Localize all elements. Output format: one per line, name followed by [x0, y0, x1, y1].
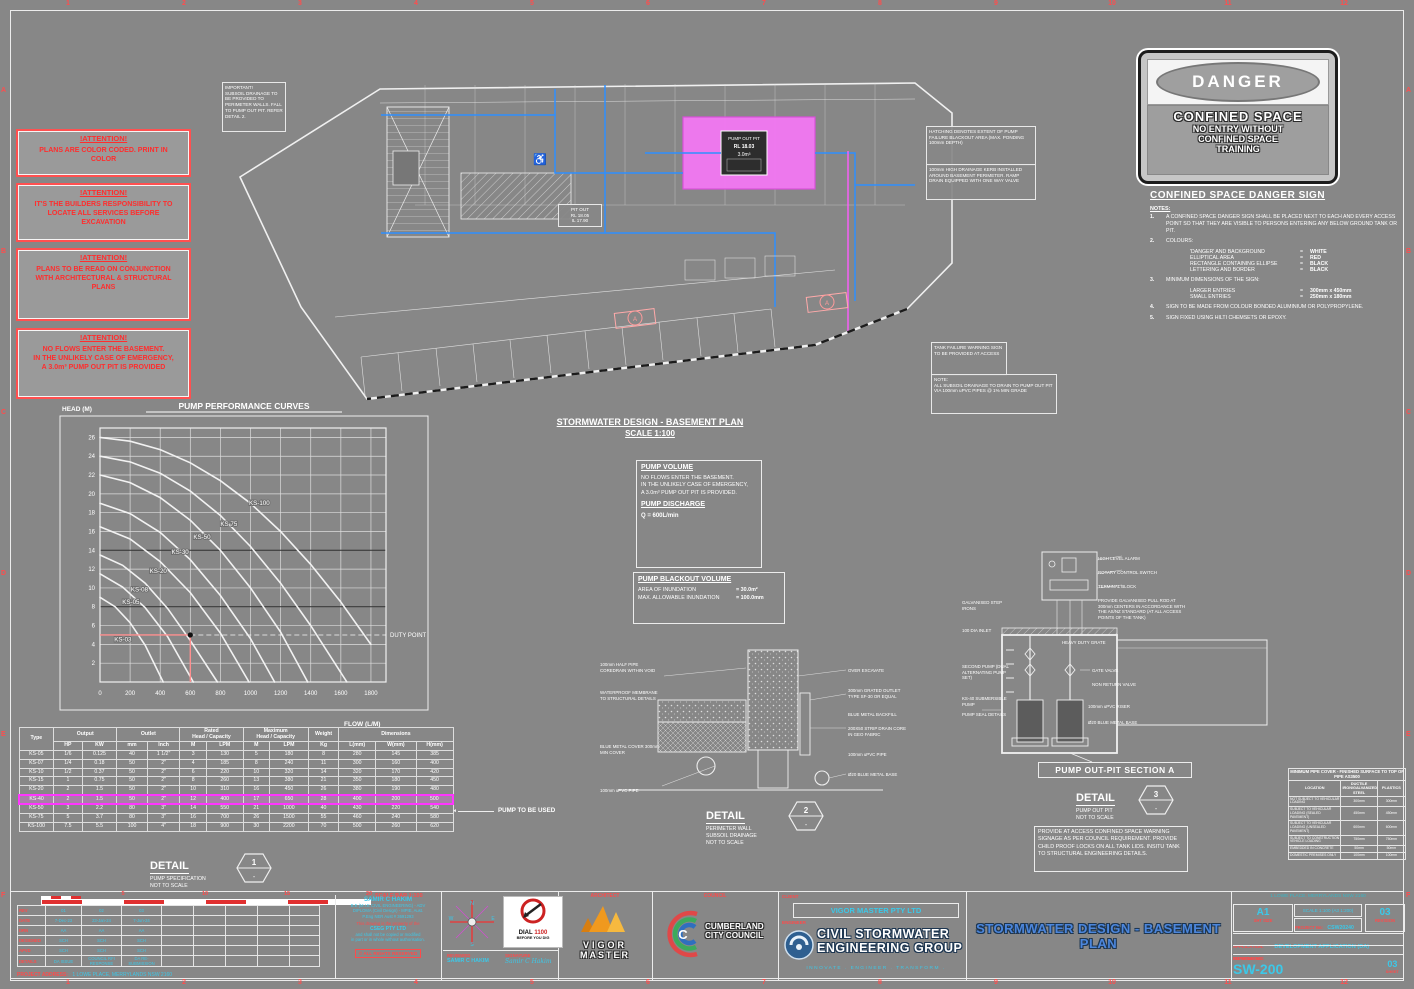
section-marker-a-right: A: [806, 293, 848, 313]
note-pairs: LARGER ENTRIES=300mm x 450mmSMALL ENTRIE…: [1190, 288, 1404, 300]
x-tick: 1000: [244, 691, 258, 697]
project-address-value: 1 LOWE PLACE, MERRYLANDS NSW 2160: [72, 972, 172, 978]
spec-row: KS-5032.2803"1455021100040430220540: [19, 804, 453, 813]
spec-cell: 4: [180, 759, 206, 768]
grid-row-label: D: [1406, 570, 1411, 577]
spec-cell: 350: [339, 777, 376, 786]
danger-word: DANGER: [1192, 72, 1284, 92]
spec-cell: 540: [416, 804, 453, 813]
pipe-cover-row: SUBJECT TO CONSTRUCTION VEHICLE LOADING7…: [1289, 835, 1406, 845]
note-number: 1.: [1150, 214, 1164, 234]
drawing-title-cell: STORMWATER DESIGN - BASEMENT PLAN: [966, 892, 1231, 980]
grid-col-label: 1: [60, 0, 76, 7]
svg-text:2: 2: [804, 806, 809, 815]
plan-note-3: 100mm HIGH DRAINAGE KERB INSTALLED AROUN…: [926, 164, 1036, 200]
rev-cell: [226, 946, 258, 956]
spec-cell: 50: [117, 777, 148, 786]
y-tick: 24: [88, 454, 95, 460]
pipe-cover-row: SUBJECT TO VEHICULAR LOADING (UNSEALED P…: [1289, 821, 1406, 835]
pipe-cover-row: NOT SUBJECT TO VEHICULAR LOADING300mm300…: [1289, 796, 1406, 806]
spec-cell: 320: [270, 768, 309, 777]
rev-row-label: APVD: [18, 946, 46, 956]
rev-cell: [226, 926, 258, 936]
spec-group-header: Weight: [308, 728, 339, 742]
detail-1-sub: PUMP SPECIFICATION NOT TO SCALE: [150, 876, 206, 890]
grid-col-label: 8: [872, 0, 888, 7]
signature-cell: SIGNATURE Samir C Hakim: [505, 953, 552, 965]
pair-value: 250mm x 180mm: [1310, 294, 1404, 300]
pipe-cover-header: LOCATION: [1289, 781, 1341, 797]
danger-line3: CONFINED SPACE: [1148, 134, 1328, 144]
detail-label: 100 DIA INLET: [962, 628, 1006, 634]
x-tick: 0: [98, 691, 102, 697]
spec-cell: 240: [270, 759, 309, 768]
spec-cell: 580: [416, 814, 453, 823]
spec-cell: 430: [339, 804, 376, 813]
spec-sub-header: LPM: [270, 742, 309, 751]
project-no-label: PROJECT No:: [1295, 925, 1323, 930]
spec-cell: 3: [180, 751, 206, 760]
pump-curves-svg: 0200400600800100012001400160018002468101…: [54, 398, 436, 734]
note-number: 2.: [1150, 238, 1164, 245]
rev-row-label: DESIGNED: [18, 936, 46, 946]
pipe-cover-cell: SUBJECT TO CONSTRUCTION VEHICLE LOADING: [1289, 835, 1341, 845]
pipe-cover-header: DUCTILE IRON/GALVANIZED STEEL: [1341, 781, 1377, 797]
divider: [1231, 892, 1232, 980]
section-marker-a-left: A: [614, 309, 656, 329]
rev-cell: [290, 956, 320, 967]
pipe-cover-header: PLASTICS: [1377, 781, 1405, 797]
note-text: SIGN TO BE MADE FROM COLOUR BONDED ALUMI…: [1166, 304, 1404, 311]
project-no-cell: PROJECT No: CSW20240: [1294, 918, 1362, 932]
spec-cell: 190: [376, 786, 417, 795]
detail-3-title: DETAIL: [1076, 792, 1115, 806]
grid-col-label: 5: [524, 979, 540, 986]
scalebar-mini: [41, 896, 51, 899]
scalebar-mini: [71, 896, 81, 899]
architect-logo: VIGOR MASTER: [558, 902, 652, 961]
pump-curve: [100, 503, 275, 682]
y-tick: 2: [92, 661, 96, 667]
spec-cell: 5: [243, 751, 269, 760]
pit-rl: RL 18.03: [734, 144, 755, 150]
spec-cell: 21: [308, 777, 339, 786]
basement-plan-drawing: ♿ PUMP OUT PIT RL 18.03 3.0m³: [215, 55, 1035, 405]
title-block: 5101520SCALE BAR 1:100 REV010203DATE7-De…: [10, 891, 1404, 981]
cseg-logo-icon: [783, 929, 815, 961]
project-address-label: PROJECT ADDRESS:: [17, 972, 68, 978]
pipe-cover-cell: 100mm: [1341, 852, 1377, 859]
rev-cell: [194, 936, 226, 946]
revision-cell: 03 REVISION: [1365, 904, 1405, 932]
pipe-cover-cell: 750mm: [1341, 835, 1377, 845]
accessible-parking-icon: ♿: [533, 153, 547, 166]
tb-project-address: 1 LOWE PLACE, MERRYLANDS NSW 2160: [1233, 894, 1403, 899]
spec-cell: 300: [339, 759, 376, 768]
danger-line1: CONFINED SPACE: [1148, 109, 1328, 124]
attention-title: !ATTENTION!: [18, 253, 189, 262]
svg-text:-: -: [253, 874, 256, 881]
spec-cell: 0.125: [82, 751, 117, 760]
spec-cell: 220: [376, 804, 417, 813]
svg-text:A: A: [825, 301, 829, 307]
rev-cell: [226, 916, 258, 926]
signature-script: Samir C Hakim: [505, 958, 552, 965]
pit-volume: 3.0m³: [738, 152, 751, 158]
rev-cell: SCH: [82, 936, 122, 946]
x-tick: 1200: [274, 691, 288, 697]
pair-equals: =: [1300, 267, 1310, 273]
note-pairs: 'DANGER' AND BACKGROUND=WHITEELLIPTICAL …: [1190, 249, 1404, 273]
attention-title: !ATTENTION!: [18, 333, 189, 342]
spec-cell: KS-20: [19, 786, 54, 795]
drawing-no-value: SW-200: [1233, 961, 1403, 977]
curve-label: KS-20: [150, 568, 168, 575]
rev-cell: [194, 906, 226, 916]
note-number: 5.: [1150, 315, 1164, 322]
spec-cell: 1.5: [82, 786, 117, 795]
pipe-cover-cell: NOT SUBJECT TO VEHICULAR LOADING: [1289, 796, 1341, 806]
section-a-note: PROVIDE AT ACCESS CONFINED SPACE WARNING…: [1034, 826, 1188, 872]
pump-performance-chart: 0200400600800100012001400160018002468101…: [54, 398, 436, 734]
spec-cell: 170: [376, 768, 417, 777]
rev-cell: [194, 956, 226, 967]
spec-cell: 400: [416, 759, 453, 768]
grid-row-label: C: [1, 409, 6, 416]
spec-cell: 30: [243, 822, 269, 831]
divider: [778, 892, 779, 980]
spec-group-header: Rated Head / Capacity: [180, 728, 243, 742]
credentials-cell: SAMIR C HAKIM B.E (M.I.E CIVIL ENGINEERI…: [335, 895, 440, 978]
spec-cell: 160: [376, 759, 417, 768]
grid-col-label: 9: [988, 0, 1004, 7]
spec-row: KS-1510.75502"82601338021350180450: [19, 777, 453, 786]
architect-label: ARCHITECT: [558, 893, 652, 899]
attention-body: NO FLOWS ENTER THE BASEMENT. IN THE UNLI…: [18, 345, 189, 372]
spec-row: KS-071/40.18502"4185824011300160400: [19, 759, 453, 768]
note-text: SIGN FIXED USING HILTI CHEMSETS OR EPOXY…: [1166, 315, 1404, 322]
y-tick: 26: [88, 435, 95, 441]
spec-cell: 100: [117, 822, 148, 831]
callout-leader-line: [458, 811, 494, 812]
spec-cell: 180: [270, 751, 309, 760]
spec-cell: 2": [147, 777, 180, 786]
spec-cell: 5: [54, 814, 83, 823]
detail-1-title: DETAIL: [150, 860, 189, 874]
pipe-cover-cell: SUBJECT TO VEHICULAR LOADING (UNSEALED P…: [1289, 821, 1341, 835]
plan-note-5: NOTE: ALL SUBSOIL DRAINAGE TO DRAIN TO P…: [931, 374, 1057, 414]
spec-cell: 3": [147, 804, 180, 813]
council-logo-text: CUMBERLAND CITY COUNCIL: [705, 922, 777, 941]
grid-col-label: 3: [292, 0, 308, 7]
spec-cell: 480: [416, 786, 453, 795]
compass-s: S: [470, 942, 474, 947]
spec-sub-header: H(mm): [416, 742, 453, 751]
pipe-cover-cell: 100mm: [1377, 852, 1405, 859]
revision-table-el: REV010203DATE7-Dec-2323-Jan-247-Jun-24DR…: [17, 905, 320, 967]
spec-row: KS-2021.5502"103101645026380190480: [19, 786, 453, 795]
spec-cell: 26: [243, 814, 269, 823]
rev-cell: [258, 926, 290, 936]
pipe-cover-row: SUBJECT TO VEHICULAR LOADING (SEALED PAV…: [1289, 807, 1406, 821]
spec-cell: 50: [117, 795, 148, 805]
spec-cell: 14: [180, 804, 206, 813]
spec-cell: 900: [206, 822, 243, 831]
spec-cell: 280: [339, 751, 376, 760]
project-no-value: CSW20240: [1327, 925, 1354, 931]
spec-group-header: Maximum Head / Capacity: [243, 728, 308, 742]
spec-cell: 8: [180, 777, 206, 786]
note-number: 4.: [1150, 304, 1164, 311]
spec-cell: 550: [206, 804, 243, 813]
rev-cell: AA: [82, 926, 122, 936]
spec-row: KS-101/20.37502"62201032014320170420: [19, 768, 453, 777]
spec-cell: 1/6: [54, 751, 83, 760]
rev-cell: [162, 946, 194, 956]
architect-logo-line2: MASTER: [558, 951, 652, 961]
attention-body: PLANS TO BE READ ON CONJUNCTION WITH ARC…: [18, 265, 189, 292]
grid-col-label: 5: [524, 0, 540, 7]
spec-sub-header: HP: [54, 742, 83, 751]
spec-cell: KS-15: [19, 777, 54, 786]
grid-col-label: 6: [640, 0, 656, 7]
spec-cell: 10: [243, 768, 269, 777]
divider: [652, 892, 653, 980]
spec-cell: 400: [206, 795, 243, 805]
spec-cell: KS-05: [19, 751, 54, 760]
section-a-heading: PUMP OUT-PIT SECTION A: [1038, 762, 1192, 778]
compass-n: N: [470, 901, 474, 907]
engineer-tagline: INNOVATE . ENGINEER . TRANSFORM .: [793, 966, 959, 971]
spec-cell: 1 1/2": [147, 751, 180, 760]
callout-arrow: ◄: [452, 808, 457, 814]
spec-cell: 80: [117, 804, 148, 813]
spec-cell: 2200: [270, 822, 309, 831]
rev-cell: [162, 916, 194, 926]
pump-blackout-rows: AREA OF INUNDATION= 30.0m²MAX. ALLOWABLE…: [638, 586, 780, 602]
spec-cell: 180: [376, 777, 417, 786]
spec-cell: 1.5: [82, 795, 117, 805]
spec-cell: 14: [308, 768, 339, 777]
pump-discharge-value: Q = 600L/min: [641, 512, 757, 520]
ramp-hatch: [461, 173, 571, 219]
rev-cell: [162, 906, 194, 916]
detail-1-marker: 1 -: [236, 852, 272, 884]
grid-row-label: D: [1, 570, 6, 577]
y-tick: 8: [92, 605, 96, 611]
rights-badge: © ALL RIGHTS RESERVED: [355, 949, 421, 958]
spec-cell: 0.37: [82, 768, 117, 777]
rev-cell: SCH: [46, 946, 82, 956]
grid-col-label: 8: [872, 979, 888, 986]
spec-cell: 0.18: [82, 759, 117, 768]
pipe-cover-cell: 300mm: [1341, 796, 1377, 806]
cumberland-logo-icon: C: [666, 906, 702, 962]
spec-cell: 500: [416, 795, 453, 805]
spec-cell: KS-50: [19, 804, 54, 813]
spec-cell: 3: [54, 804, 83, 813]
spec-cell: 55: [308, 814, 339, 823]
spec-cell: 2: [54, 795, 83, 805]
stair-core: [387, 107, 449, 237]
pipe-cover-cell: 600mm: [1377, 821, 1405, 835]
y-tick: 10: [88, 586, 95, 592]
rev-cell: [226, 906, 258, 916]
spec-sub-header: LPM: [206, 742, 243, 751]
pipe-cover-cell: SUBJECT TO VEHICULAR LOADING (SEALED PAV…: [1289, 807, 1341, 821]
note-pair: LETTERING AND BORDER=BLACK: [1190, 267, 1404, 273]
grid-col-label: 12: [1336, 0, 1352, 7]
spec-cell: 8: [308, 751, 339, 760]
engineer-quals: B.E (M.I.E CIVIL ENGINEERING) - ADV DIPL…: [336, 903, 440, 919]
spec-cell: 70: [308, 822, 339, 831]
spec-sub-header: Kg: [308, 742, 339, 751]
rev-cell: 23-Jan-24: [82, 916, 122, 926]
detail-label: ROTARY CONTROL SWITCH: [1098, 570, 1180, 576]
spec-cell: 380: [270, 777, 309, 786]
spec-cell: KS-40: [19, 795, 54, 805]
rev-cell: [290, 936, 320, 946]
vigor-master-icon: [579, 902, 631, 936]
spec-cell: 500: [339, 822, 376, 831]
plan-scale: SCALE 1:100: [527, 429, 773, 438]
y-tick: 12: [88, 567, 95, 573]
spec-cell: 50: [117, 759, 148, 768]
spec-row: KS-1007.55.51004"1890030220070500260620: [19, 822, 453, 831]
blackout-value: = 30.0m²: [736, 586, 780, 594]
note-text: MINIMUM DIMENSIONS OF THE SIGN:: [1166, 277, 1404, 284]
sheet-no-cell: 03 SHEET: [1386, 959, 1399, 974]
detail-3-marker: 3 -: [1138, 784, 1174, 816]
spec-cell: 185: [206, 759, 243, 768]
rev-cell: [290, 946, 320, 956]
spec-cell: 450: [270, 786, 309, 795]
engineer-name: SAMIR C HAKIM: [336, 896, 440, 903]
detail-label: KS-40 SUBMERSIBLE PUMP: [962, 696, 1012, 707]
spec-row: KS-4021.5502"124001765028400200500: [19, 795, 453, 805]
attention-title: !ATTENTION!: [18, 188, 189, 197]
detail-label: BLUE METAL COVER 300mm MIN COVER: [600, 744, 660, 755]
pump-to-be-used-label: PUMP TO BE USED: [498, 807, 555, 814]
sheet-size-label: SHT SIZE: [1234, 918, 1292, 923]
pipe-cover-row: DOMESTIC PREMISES ONLY100mm100mm: [1289, 852, 1406, 859]
sheet-no-label: SHEET: [1386, 969, 1399, 974]
detail-label: 100mm HALF PIPE COREDRAIN WITHIN VOID: [600, 662, 660, 673]
x-tick: 600: [185, 691, 196, 697]
pump-curve: [100, 437, 371, 644]
spec-cell: 1: [54, 777, 83, 786]
y-tick: 18: [88, 511, 95, 517]
blackout-label: AREA OF INUNDATION: [638, 586, 736, 594]
scalebar-mini: [61, 896, 71, 899]
drawing-title: STORMWATER DESIGN - BASEMENT PLAN: [966, 921, 1231, 951]
spec-cell: 10: [180, 786, 206, 795]
rev-cell: [194, 946, 226, 956]
grid-row-label: E: [1, 731, 6, 738]
pipe-cover-cell: 300mm: [1377, 796, 1405, 806]
spec-cell: 50: [117, 768, 148, 777]
y-tick: 20: [88, 492, 95, 498]
grid-row-label: F: [1406, 892, 1410, 899]
rev-cell: [258, 906, 290, 916]
sheet-size-cell: A1 SHT SIZE: [1233, 904, 1293, 932]
duty-point-label: DUTY POINT: [390, 633, 427, 639]
detail-label: HIGH LEVEL ALARM: [1098, 556, 1180, 562]
x-tick: 800: [215, 691, 226, 697]
pipe-cover-row: EMBEDDED IN CONCRETE50mm50mm: [1289, 846, 1406, 853]
detail-label: 200X50 STRIP DRAIN CORE IN GEO FABRIC: [848, 726, 906, 737]
curve-label: KS-100: [249, 500, 270, 507]
spec-cell: 2: [54, 786, 83, 795]
spec-cell: 1/4: [54, 759, 83, 768]
engineer-line2: ENGINEERING GROUP: [817, 942, 967, 956]
pair-label: SMALL ENTRIES: [1190, 294, 1300, 300]
note-number: 3.: [1150, 277, 1164, 284]
confined-note-item: 3.MINIMUM DIMENSIONS OF THE SIGN:: [1150, 277, 1404, 284]
spec-cell: 50: [117, 786, 148, 795]
spec-cell: KS-07: [19, 759, 54, 768]
pump-discharge-heading: PUMP DISCHARGE: [641, 501, 757, 508]
engineer-label: ENGINEER: [782, 920, 806, 925]
svg-text:A: A: [633, 317, 637, 323]
revision-table: REV010203DATE7-Dec-2323-Jan-247-Jun-24DR…: [17, 905, 320, 967]
pipe-cover-title: MINIMUM PIPE COVER - FINISHED SURFACE TO…: [1289, 769, 1406, 781]
spec-group-header: Output: [54, 728, 117, 742]
spec-cell: 40: [308, 804, 339, 813]
pump-blackout-heading: PUMP BLACKOUT VOLUME: [638, 576, 780, 583]
rev-cell: 01: [46, 906, 82, 916]
detail-label: Ø20 BLUE METAL BASE: [848, 772, 906, 778]
client-label: CLIENT: [782, 894, 799, 899]
note-pair: SMALL ENTRIES=250mm x 180mm: [1190, 294, 1404, 300]
pump-volume-box: PUMP VOLUME NO FLOWS ENTER THE BASEMENT.…: [636, 460, 762, 568]
scalebar-mini: [51, 896, 61, 899]
spec-cell: 3": [147, 814, 180, 823]
revision-label: REVISION: [1366, 918, 1404, 923]
spec-cell: 16: [243, 786, 269, 795]
sheet-no-value: 03: [1386, 959, 1399, 969]
spec-cell: KS-100: [19, 822, 54, 831]
curve-label: KS-03: [114, 637, 132, 644]
detail-label: WATERPROOF MEMBRANE TO STRUCTURAL DETAIL…: [600, 690, 660, 701]
danger-sign-band: DANGER: [1147, 59, 1329, 105]
pair-label: LETTERING AND BORDER: [1190, 267, 1300, 273]
attention-body: PLANS ARE COLOR CODED. PRINT IN COLOR: [18, 146, 189, 164]
engineer-logo-text: CIVIL STORMWATER ENGINEERING GROUP: [817, 928, 967, 956]
council-label: COUNCIL: [652, 893, 778, 899]
spec-cell: 385: [416, 751, 453, 760]
spec-cell: 380: [339, 786, 376, 795]
grid-col-label: 11: [1220, 979, 1236, 986]
spec-cell: 650: [270, 795, 309, 805]
drawing-no-row: DRAWING No: SW-200 03 SHEET: [1233, 954, 1403, 980]
detail-label: Ø20 BLUE METAL BASE: [1088, 720, 1160, 726]
attention-box-1: !ATTENTION! PLANS ARE COLOR CODED. PRINT…: [16, 129, 191, 177]
detail-3-title-block: DETAIL PUMP OUT PIT NOT TO SCALE: [1076, 788, 1115, 822]
rev-cell: SCH: [46, 936, 82, 946]
spec-cell: 28: [308, 795, 339, 805]
blackout-value: = 100.0mm: [736, 594, 780, 602]
danger-line2: NO ENTRY WITHOUT: [1148, 124, 1328, 134]
grid-col-label: 4: [408, 979, 424, 986]
note-text: A CONFINED SPACE DANGER SIGN SHALL BE PL…: [1166, 214, 1404, 234]
rev-cell: [290, 916, 320, 926]
compass-e: E: [491, 916, 495, 922]
spec-cell: KS-10: [19, 768, 54, 777]
pipe-cover-table-el: MINIMUM PIPE COVER - FINISHED SURFACE TO…: [1288, 768, 1406, 860]
detail-label: 100mm uPVC PIPE: [848, 752, 906, 758]
spec-cell: 1500: [270, 814, 309, 823]
